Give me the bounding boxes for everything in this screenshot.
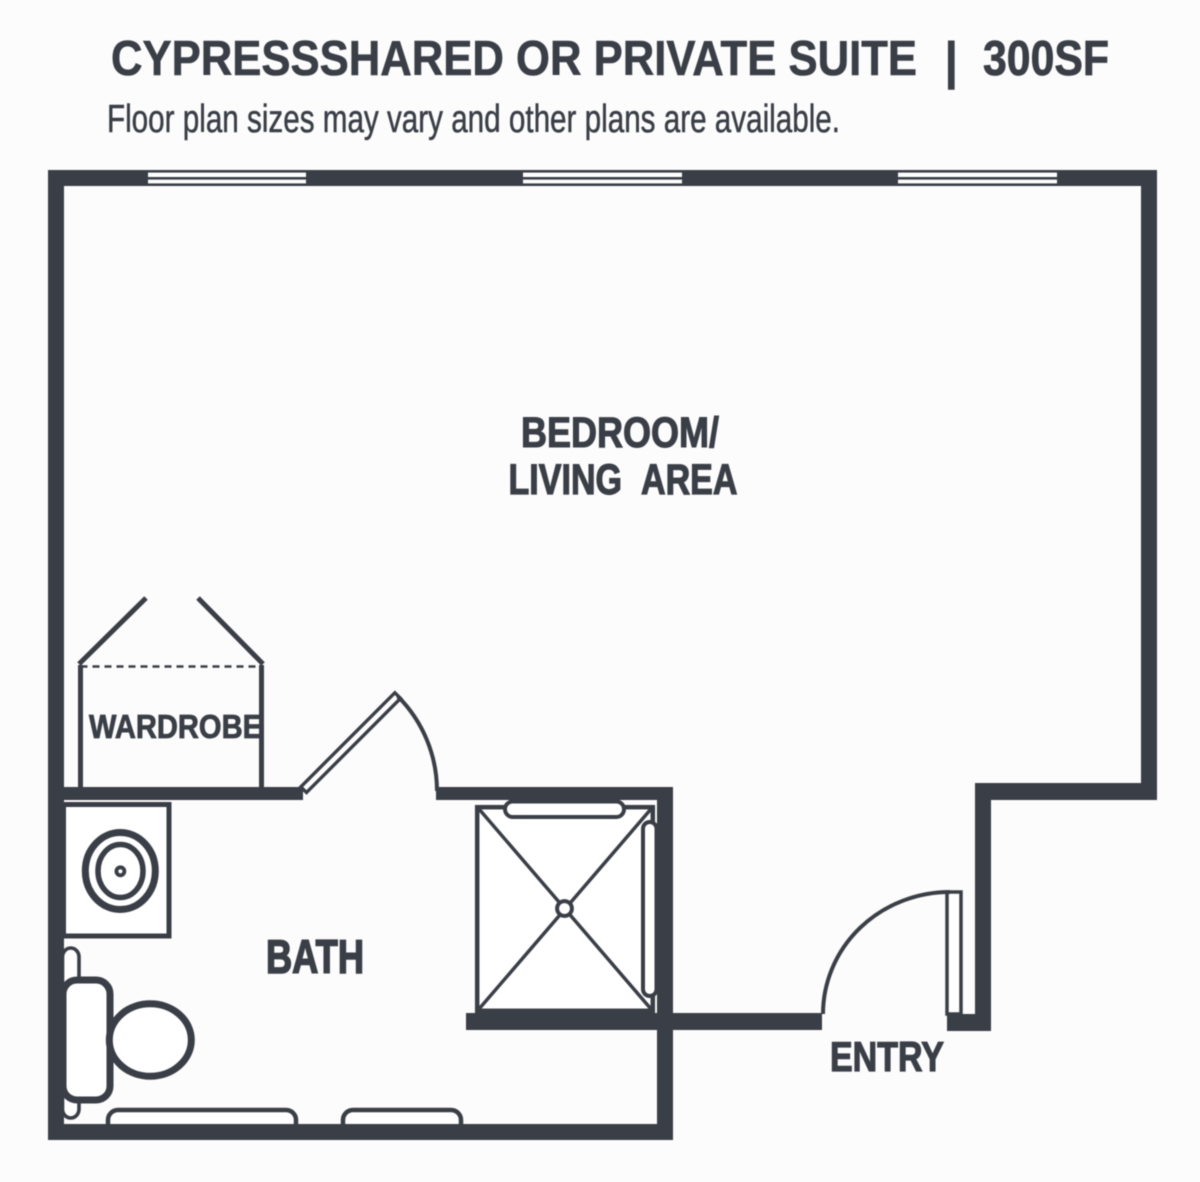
svg-text:CYPRESSSHARED OR PRIVATE SUITE: CYPRESSSHARED OR PRIVATE SUITE <box>111 32 917 86</box>
svg-text:ENTRY: ENTRY <box>830 1033 944 1080</box>
svg-text:WARDROBE: WARDROBE <box>89 708 262 745</box>
svg-text:|: | <box>944 32 959 90</box>
svg-text:300SF: 300SF <box>983 32 1109 86</box>
svg-text:Floor plan sizes may vary and: Floor plan sizes may vary and other plan… <box>107 98 840 141</box>
svg-text:BEDROOM/: BEDROOM/ <box>521 409 719 457</box>
svg-text:BATH: BATH <box>266 930 364 983</box>
svg-text:LIVING AREA: LIVING AREA <box>509 456 738 504</box>
